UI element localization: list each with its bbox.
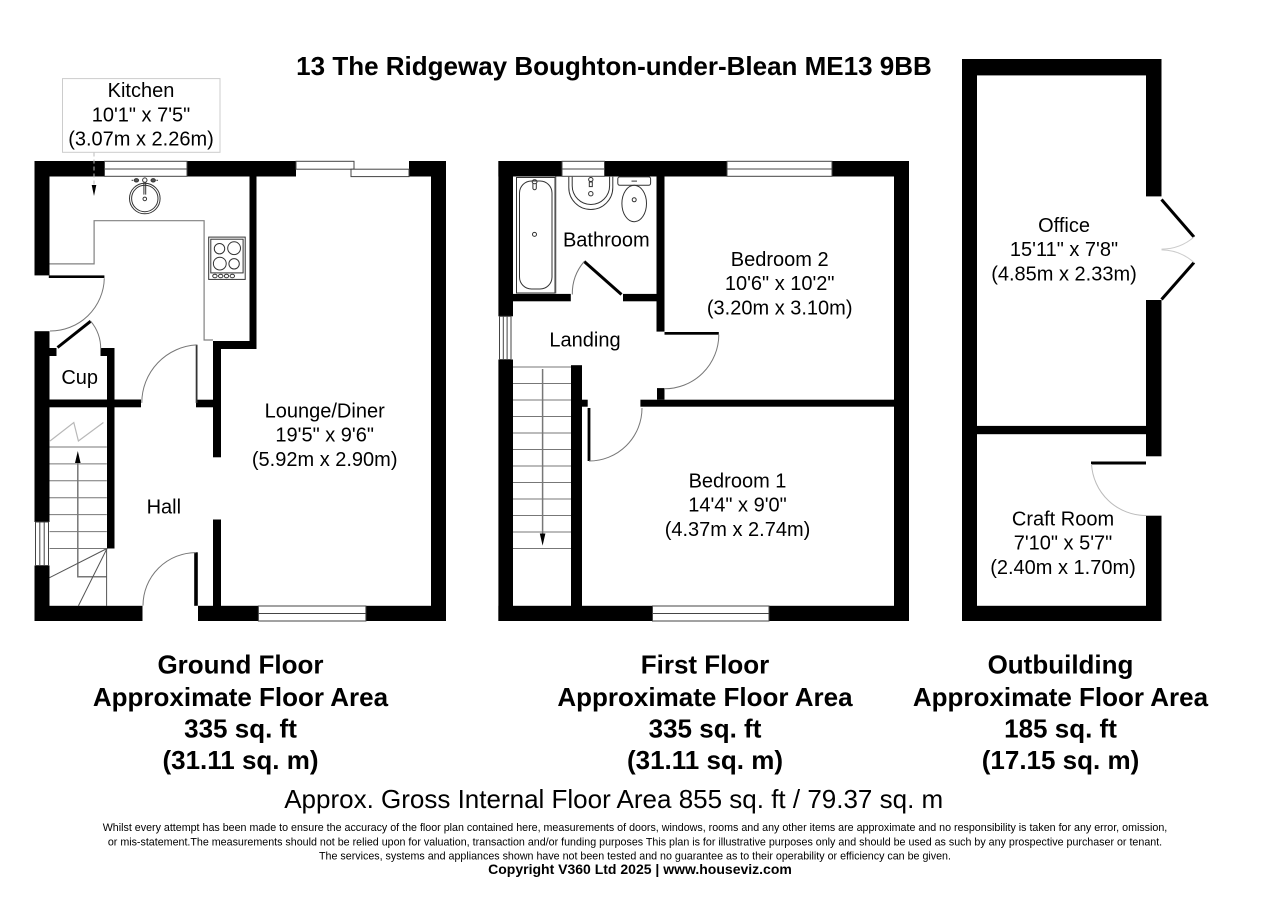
svg-text:Outbuilding: Outbuilding [988,650,1134,680]
svg-text:Ground Floor: Ground Floor [157,650,323,680]
svg-text:335 sq. ft: 335 sq. ft [649,714,762,744]
svg-text:Bedroom 2: Bedroom 2 [731,249,829,271]
svg-text:Lounge/Diner: Lounge/Diner [265,400,385,422]
svg-text:10'6" x 10'2": 10'6" x 10'2" [725,273,835,295]
svg-text:185 sq. ft: 185 sq. ft [1004,714,1117,744]
svg-text:Approximate Floor Area: Approximate Floor Area [93,682,389,712]
svg-text:Bedroom 1: Bedroom 1 [689,471,787,493]
svg-text:Kitchen: Kitchen [108,80,175,102]
svg-text:Cup: Cup [61,367,98,389]
svg-text:Approximate Floor Area: Approximate Floor Area [557,682,853,712]
svg-text:(5.92m x 2.90m): (5.92m x 2.90m) [252,449,398,471]
svg-text:14'4" x 9'0": 14'4" x 9'0" [688,495,787,517]
svg-text:Landing: Landing [549,330,620,352]
svg-text:(17.15 sq. m): (17.15 sq. m) [982,745,1140,775]
svg-text:19'5" x 9'6": 19'5" x 9'6" [275,425,374,447]
svg-text:Approx. Gross Internal Floor A: Approx. Gross Internal Floor Area 855 sq… [284,784,943,814]
svg-text:Craft Room: Craft Room [1012,508,1114,530]
svg-text:(3.20m x 3.10m): (3.20m x 3.10m) [707,297,853,319]
svg-text:Whilst every attempt has been: Whilst every attempt has been made to en… [103,822,1168,834]
svg-text:Approximate Floor Area: Approximate Floor Area [913,682,1209,712]
svg-text:7'10" x 5'7": 7'10" x 5'7" [1014,533,1113,555]
svg-text:(2.40m x 1.70m): (2.40m x 1.70m) [990,557,1136,579]
svg-text:(31.11 sq. m): (31.11 sq. m) [162,745,318,775]
svg-text:(3.07m x 2.26m): (3.07m x 2.26m) [68,129,214,151]
svg-text:335 sq. ft: 335 sq. ft [184,714,297,744]
svg-text:or mis-statement.The measureme: or mis-statement.The measurements should… [108,837,1162,849]
svg-text:13 The Ridgeway Boughton-under: 13 The Ridgeway Boughton-under-Blean ME1… [296,51,932,81]
svg-text:10'1" x 7'5": 10'1" x 7'5" [92,104,191,126]
svg-text:Office: Office [1038,215,1090,237]
svg-text:15'11" x 7'8": 15'11" x 7'8" [1010,239,1118,261]
svg-text:Bathroom: Bathroom [563,229,650,251]
svg-text:Hall: Hall [147,497,181,519]
svg-text:(31.11 sq. m): (31.11 sq. m) [627,745,783,775]
svg-text:(4.37m x 2.74m): (4.37m x 2.74m) [665,519,811,541]
svg-text:First Floor: First Floor [641,650,770,680]
svg-text:Copyright V360 Ltd 2025 | www.: Copyright V360 Ltd 2025 | www.houseviz.c… [488,861,792,877]
svg-text:(4.85m x 2.33m): (4.85m x 2.33m) [991,263,1137,285]
